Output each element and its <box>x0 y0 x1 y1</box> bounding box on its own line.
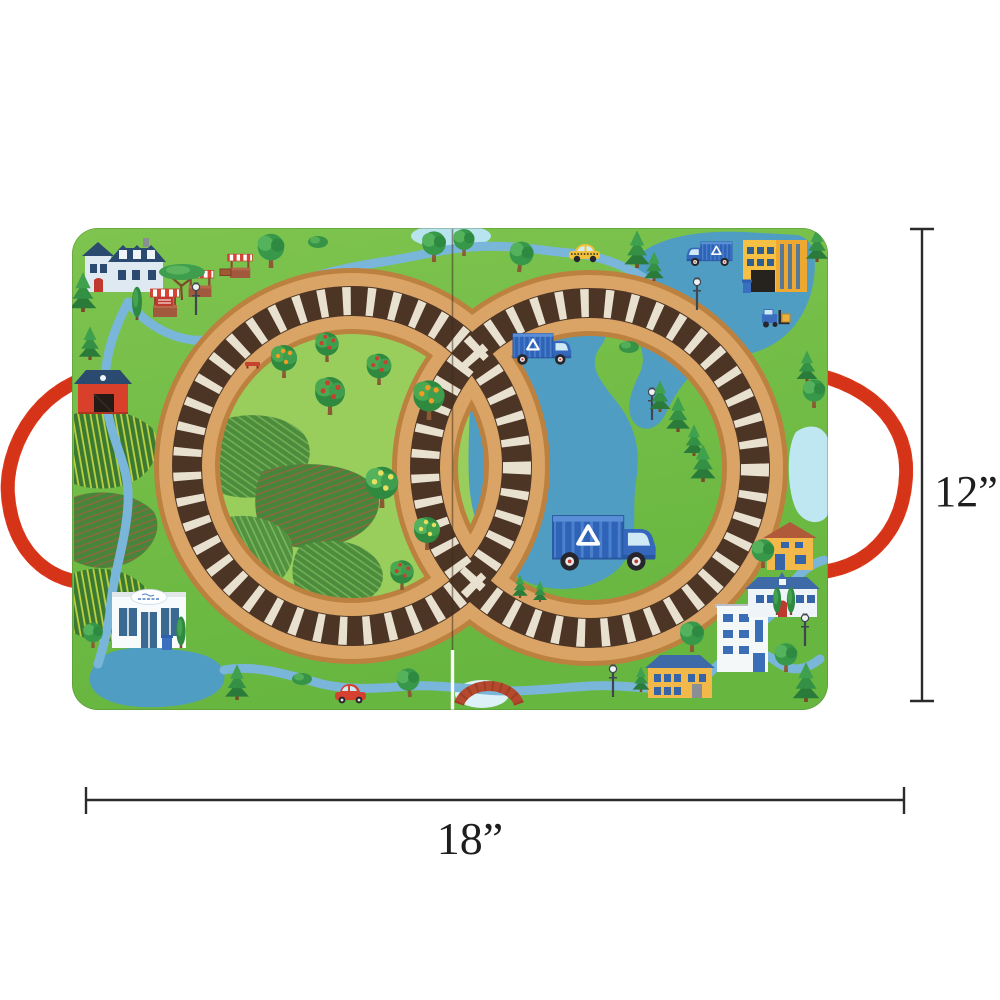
recycling-factory <box>743 240 807 292</box>
height-label: 12” <box>934 467 998 516</box>
crate <box>220 269 231 276</box>
product-image: 12” 18” <box>0 0 1000 1000</box>
height-dimension <box>910 229 934 701</box>
barn <box>74 370 132 414</box>
grocery-market <box>112 590 186 649</box>
pond-bottom-left <box>89 648 224 708</box>
recycle-bin <box>742 280 752 294</box>
rope-handle-right <box>822 376 906 572</box>
rope-handle-left <box>8 382 78 582</box>
recycle-bin <box>161 635 173 650</box>
yellow-house-town <box>645 655 715 698</box>
play-board <box>70 224 830 712</box>
width-label: 18” <box>437 813 503 864</box>
width-dimension <box>86 787 904 814</box>
white-house <box>745 572 820 617</box>
